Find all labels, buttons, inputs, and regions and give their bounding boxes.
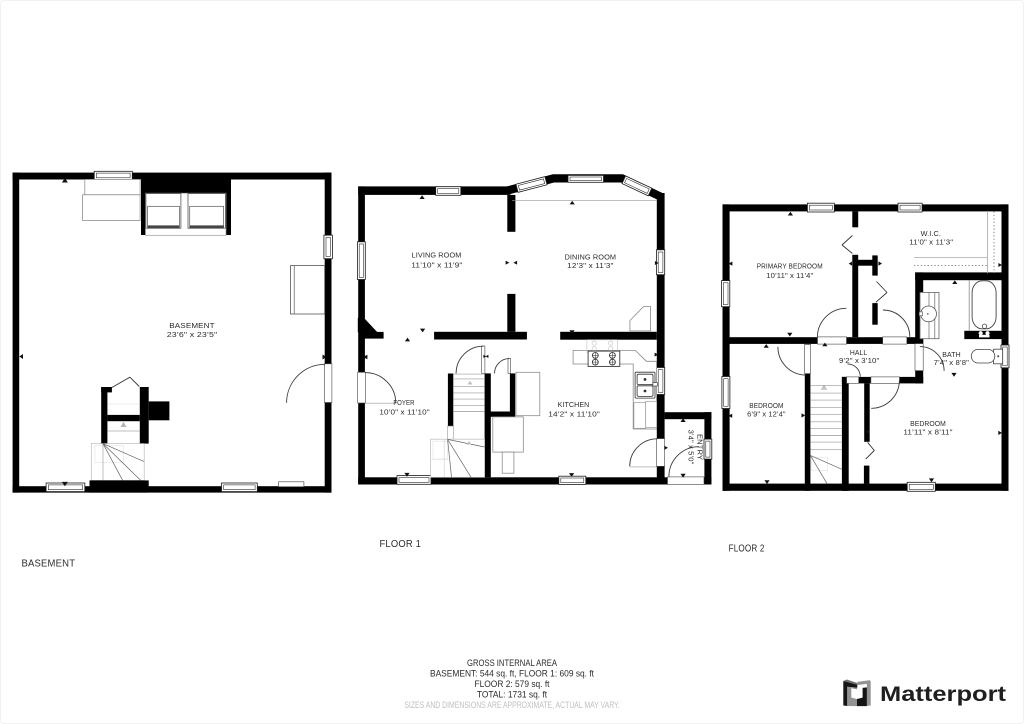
svg-text:FLOOR 2: 579 sq. ft: FLOOR 2: 579 sq. ft <box>475 679 550 689</box>
svg-text:6’9" x 12’4": 6’9" x 12’4" <box>747 410 786 419</box>
svg-text:23’6" x 23’5": 23’6" x 23’5" <box>167 330 218 339</box>
svg-text:BASEMENT: BASEMENT <box>22 558 76 569</box>
svg-text:GROSS INTERNAL AREA: GROSS INTERNAL AREA <box>467 658 558 668</box>
svg-text:BEDROOM: BEDROOM <box>910 419 946 428</box>
svg-text:11’0" x 11’3": 11’0" x 11’3" <box>909 238 953 247</box>
svg-text:BASEMENT: BASEMENT <box>169 321 215 330</box>
svg-text:9’2" x 3’10": 9’2" x 3’10" <box>839 356 880 365</box>
svg-text:3’4" x 5’0": 3’4" x 5’0" <box>687 430 696 465</box>
svg-text:14’2" x 11’10": 14’2" x 11’10" <box>548 409 600 418</box>
svg-text:11’10" x 11’9": 11’10" x 11’9" <box>411 261 462 270</box>
svg-text:FOYER: FOYER <box>393 398 415 407</box>
svg-text:LIVING ROOM: LIVING ROOM <box>412 251 462 260</box>
svg-text:10’0" x 11’10": 10’0" x 11’10" <box>379 408 430 417</box>
svg-text:10’11" x 11’4": 10’11" x 11’4" <box>766 271 813 280</box>
svg-text:PRIMARY BEDROOM: PRIMARY BEDROOM <box>757 261 823 270</box>
svg-text:SIZES AND DIMENSIONS ARE APPRO: SIZES AND DIMENSIONS ARE APPROXIMATE, AC… <box>404 700 619 710</box>
svg-text:11’11" x 8’11": 11’11" x 8’11" <box>903 428 953 437</box>
svg-text:FLOOR 1: FLOOR 1 <box>380 539 422 550</box>
svg-text:Matterport: Matterport <box>880 682 1006 706</box>
svg-text:BASEMENT: 544 sq. ft, FLOOR 1:: BASEMENT: 544 sq. ft, FLOOR 1: 609 sq. f… <box>430 669 594 679</box>
svg-text:TOTAL: 1731 sq. ft: TOTAL: 1731 sq. ft <box>477 690 548 700</box>
svg-text:ENTRY: ENTRY <box>696 434 705 460</box>
svg-text:FLOOR 2: FLOOR 2 <box>729 543 765 554</box>
svg-text:12’3" x 11’3": 12’3" x 11’3" <box>567 261 614 270</box>
svg-text:KITCHEN: KITCHEN <box>558 400 590 409</box>
svg-text:7’4" x 8’8": 7’4" x 8’8" <box>934 358 970 367</box>
